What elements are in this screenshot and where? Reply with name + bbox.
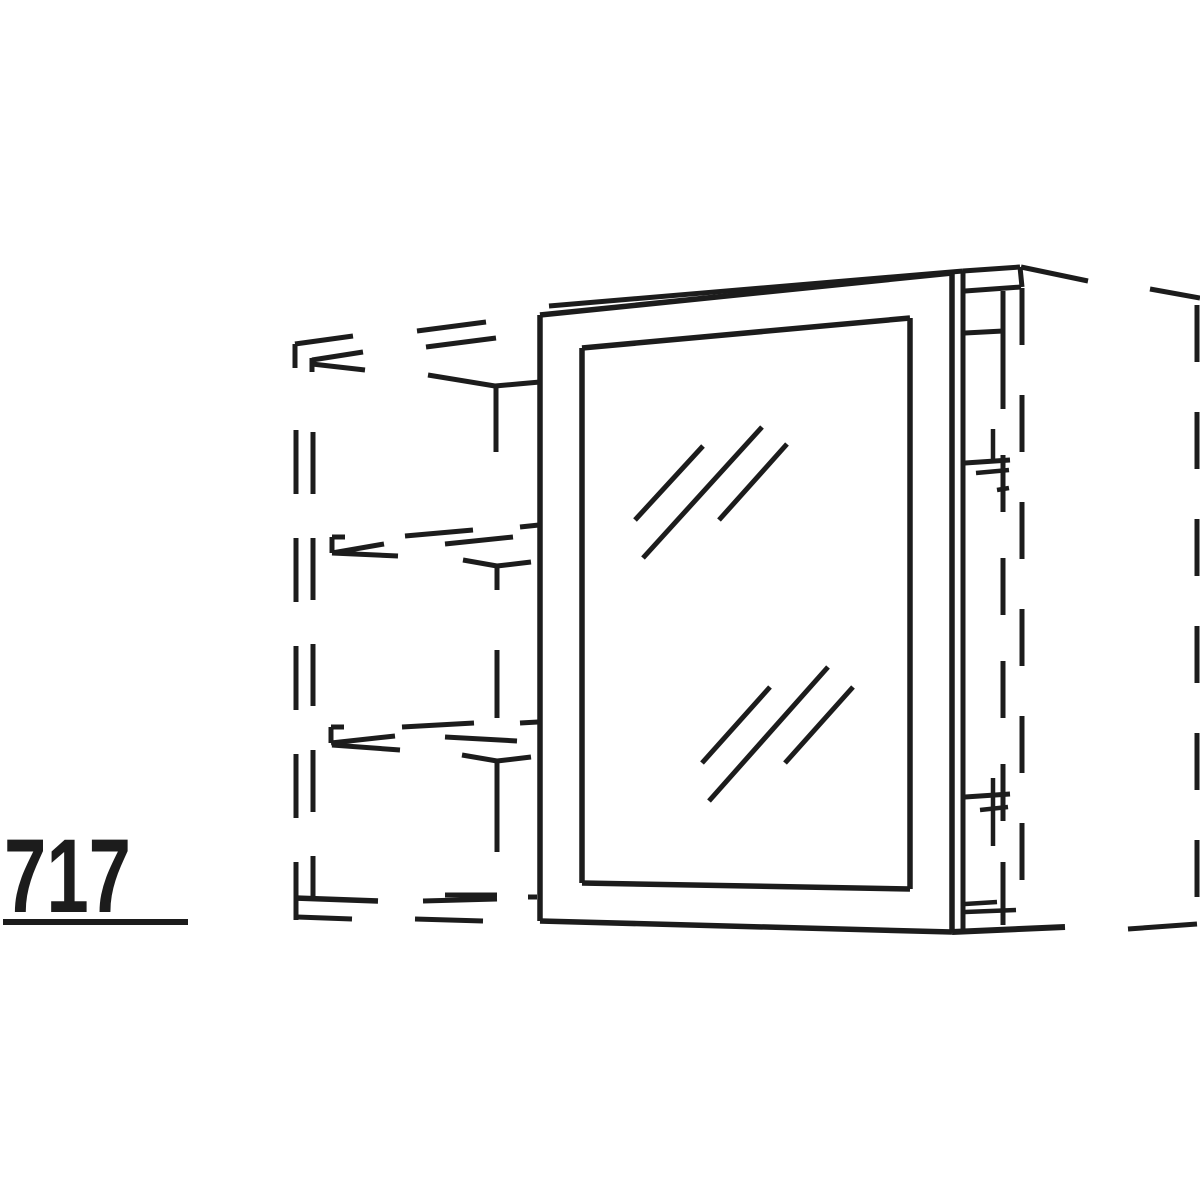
hidden-dash-segments: [295, 289, 1200, 929]
dimension-label: 717: [4, 818, 131, 935]
cabinet-technical-drawing: 717: [0, 0, 1200, 1200]
product-solid-lines: [428, 267, 1088, 932]
technical-drawing-page: 717: [0, 0, 1200, 1200]
hidden-dashed-lines: [296, 288, 1197, 928]
